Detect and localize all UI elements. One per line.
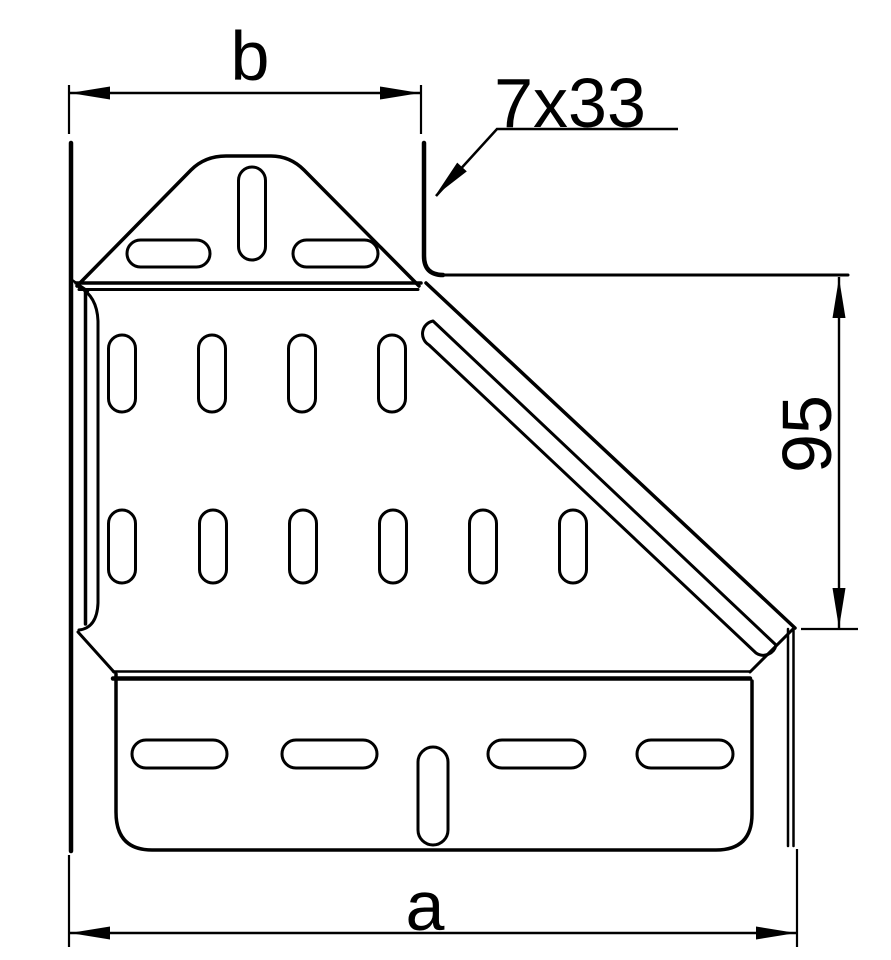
dimension-a: a bbox=[69, 849, 797, 947]
arrowhead-right bbox=[756, 927, 796, 940]
arrowhead-bottom bbox=[833, 588, 846, 628]
slot-horizontal bbox=[488, 740, 585, 768]
diagonal-hem-band bbox=[423, 321, 776, 655]
slot-callout-label: 7x33 bbox=[494, 64, 646, 142]
slot-vertical bbox=[379, 335, 406, 412]
slot-horizontal bbox=[127, 240, 210, 267]
slot-horizontal bbox=[282, 740, 377, 768]
leader-7x33: 7x33 bbox=[435, 64, 678, 196]
arrowhead-left bbox=[70, 927, 110, 940]
left-hem-strip bbox=[72, 280, 98, 630]
slot-vertical bbox=[418, 747, 448, 845]
arrowhead-left bbox=[70, 87, 110, 100]
arrowhead-top bbox=[833, 278, 846, 318]
bottom-right-corner-fold bbox=[750, 629, 793, 672]
arrowhead bbox=[435, 163, 467, 196]
slot-vertical bbox=[380, 510, 407, 583]
slot-vertical bbox=[289, 335, 316, 412]
bottom-rail bbox=[78, 629, 794, 850]
dim-label-b: b bbox=[231, 17, 270, 95]
slot-horizontal bbox=[637, 740, 733, 768]
body-slots-row-2 bbox=[109, 510, 587, 583]
technical-drawing: b 7x33 95 a bbox=[0, 0, 891, 960]
bottom-rail-slots bbox=[132, 740, 733, 845]
bottom-left-corner-fold bbox=[78, 632, 114, 672]
diagonal-edge bbox=[423, 283, 795, 655]
slot-vertical bbox=[109, 510, 136, 583]
slot-horizontal bbox=[132, 740, 227, 768]
reducer-drawing-canvas: b 7x33 95 a bbox=[0, 0, 891, 960]
slot-vertical bbox=[470, 510, 497, 583]
slot-vertical bbox=[290, 510, 317, 583]
dimension-95: 95 bbox=[768, 277, 858, 629]
slot-vertical bbox=[239, 167, 266, 260]
diagonal-outer-edge bbox=[426, 283, 795, 628]
top-flange-slots bbox=[127, 167, 378, 267]
slot-horizontal bbox=[293, 240, 378, 267]
slot-vertical bbox=[109, 335, 136, 412]
slot-vertical bbox=[560, 510, 587, 583]
dimension-b: b bbox=[69, 17, 421, 134]
rail-outline bbox=[116, 674, 752, 850]
part-outline bbox=[71, 143, 848, 851]
body-slots-row-1 bbox=[109, 335, 406, 412]
dim-label-a: a bbox=[406, 867, 445, 945]
slot-vertical bbox=[199, 335, 226, 412]
arrowhead-right bbox=[380, 87, 420, 100]
right-side-wall-edge bbox=[424, 143, 443, 275]
dim-label-95: 95 bbox=[768, 395, 846, 473]
slot-vertical bbox=[200, 510, 227, 583]
left-hem-outline bbox=[79, 287, 98, 630]
